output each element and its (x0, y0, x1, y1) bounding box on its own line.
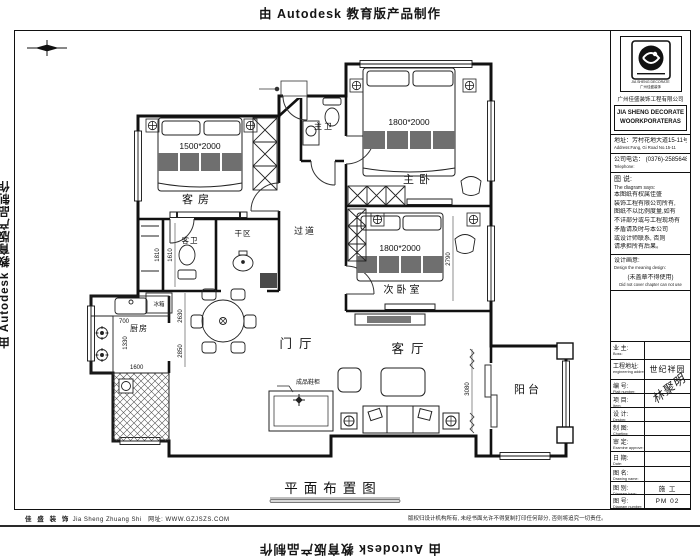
bed-size-master: 1800*2000 (388, 117, 429, 127)
phone-en: Telephone: (614, 164, 687, 169)
floor-plan: 客房 主卧 主卫 次卧室 客卫 干区 过道 厨房 门厅 客厅 阳台 冰箱 成品鞋… (15, 31, 612, 508)
row-value (645, 342, 690, 359)
label-fridge: 冰箱 (153, 300, 165, 308)
row-label-en: Diagram type: (613, 492, 642, 494)
row-label: 业 主: (613, 343, 642, 352)
seal-note-cn: (未盖章不得使用) (614, 274, 687, 282)
dim-1610: 1610 (168, 248, 174, 262)
notice-line: 装饰工程有限公司所有, (614, 200, 687, 209)
dim-2630: 2630 (178, 309, 184, 323)
row-label: 工程地址: (613, 361, 642, 370)
room-label-guest: 客房 (182, 192, 214, 206)
row-value (645, 380, 690, 393)
row-label: 审 定: (613, 437, 642, 446)
notice-line: 本图纸有权属佳盛 (614, 191, 687, 200)
company-logo-icon (631, 40, 671, 80)
row-drawing-number: 图 号:Diagram number: PM 02 (611, 495, 690, 509)
stove-burners (96, 326, 109, 362)
diagram-notice-section: 图 说: The diagram says: 本图纸有权属佳盛 装饰工程有限公司… (611, 173, 690, 255)
room-label-kitchen: 厨房 (130, 323, 148, 333)
autodesk-watermark-left: 由 Autodesk 教育版产品制作 (0, 180, 13, 349)
room-label-foyer: 门厅 (279, 336, 318, 351)
row-item: 项 目:Item: (611, 394, 690, 408)
row-label: 编 号: (613, 381, 642, 390)
notice-line: 图纸不以比例度量,如有 (614, 208, 687, 217)
room-label-dry: 干区 (235, 229, 252, 238)
row-label-en: Date: (613, 462, 642, 466)
row-label-en: Plait number: (613, 390, 642, 393)
address-section: 地址：芳村花地大道15-11号 Address:Fang, Gi Road No… (611, 134, 690, 154)
room-label-balcony: 阳台 (514, 382, 542, 396)
row-date: 日 期:Date: (611, 452, 690, 467)
dim-1600: 1600 (130, 365, 144, 371)
notice-line: 不详部分或与工程现场有 (614, 217, 687, 226)
bed-guest-room (158, 118, 242, 191)
row-label: 图 名: (613, 468, 642, 477)
notice-line: 或设计师联系, 否则 (614, 235, 687, 244)
company-name-cn: 广州佳盛装饰工程有限公司 (611, 92, 690, 105)
bed-size-guest: 1500*2000 (179, 141, 220, 151)
row-label: 日 期: (613, 453, 642, 462)
row-label-en: Boss: (613, 352, 642, 356)
room-label-second: 次卧室 (384, 283, 423, 296)
row-design: 设 计:Design: (611, 408, 690, 422)
row-label-en: engineering address: (613, 370, 642, 374)
armchairs (455, 177, 481, 254)
dining-set (191, 289, 256, 353)
row-label-en: Diagram number: (613, 505, 642, 508)
room-label-living: 客厅 (391, 341, 430, 356)
dim-1330: 1330 (123, 336, 129, 350)
row-value (645, 436, 690, 451)
notice-line: 矛盾请及时与本公司 (614, 226, 687, 235)
footer-divider (0, 525, 700, 527)
row-label: 图 别: (613, 483, 642, 492)
north-compass (27, 40, 67, 56)
title-block-rows: 业 主:Boss: 工程地址:engineering address: 世纪祥园… (611, 341, 690, 509)
seal-note-en: Did not cover chapter can not use (614, 282, 687, 287)
row-drawing-type: 图 别:Diagram type: 施 工 (611, 482, 690, 495)
dim-3080: 3080 (465, 382, 471, 396)
row-label-en: Design: (613, 418, 642, 421)
row-label-en: Item: (613, 404, 642, 407)
autodesk-watermark-bottom: 由 Autodesk 教育版产品制作 (0, 541, 700, 560)
row-label-en: Drawing name: (613, 477, 642, 481)
dim-2790: 2790 (446, 252, 452, 266)
row-value (645, 408, 690, 421)
address-cn: 地址：芳村花地大道15-11号 (614, 137, 687, 145)
plan-title: 平面布置图 (284, 481, 382, 496)
row-label: 制 图: (613, 423, 642, 432)
company-en-line2: WOORKPORATERAS (615, 118, 686, 127)
living-room-furniture (338, 314, 459, 433)
footer-brand-cn: 佳 盛 装 饰 (25, 516, 70, 523)
phone-section: 公司电话： (0376)-2585648 Telephone: (611, 154, 690, 173)
row-label: 项 目: (613, 395, 642, 404)
bed-size-second: 1800*2000 (379, 243, 420, 253)
design-section: 设计画意: Design the meaning design: (未盖章不得使… (611, 255, 690, 291)
row-label-en: Charting: (613, 432, 642, 435)
row-label-en: Examine approve: (613, 446, 642, 450)
row-project-address: 工程地址:engineering address: 世纪祥园 (611, 360, 690, 380)
drawing-frame: 客房 主卧 主卫 次卧室 客卫 干区 过道 厨房 门厅 客厅 阳台 冰箱 成品鞋… (14, 30, 691, 510)
shoe-cabinet (269, 386, 333, 431)
dim-2850: 2850 (178, 344, 184, 358)
side-tables (341, 413, 459, 429)
row-value (645, 452, 690, 466)
service-balcony (113, 373, 169, 441)
design-label-cn: 设计画意: (614, 257, 687, 265)
notice-line: 请承担所有后果。 (614, 243, 687, 252)
logo-caption-2: 广州佳盛装饰 (640, 85, 661, 90)
row-approval: 审 定:Examine approve: (611, 436, 690, 452)
room-label-master: 主卧 (403, 173, 435, 186)
company-en-line1: JIA SHENG DECORATE (615, 109, 686, 118)
row-drafting: 制 图:Charting: (611, 422, 690, 436)
row-label: 图 号: (613, 496, 642, 505)
label-shoe-cabinet: 成品鞋柜 (296, 378, 320, 386)
dim-700: 700 (119, 319, 130, 325)
design-label-en: Design the meaning design: (614, 265, 687, 270)
row-number: 编 号:Plait number: (611, 380, 690, 394)
footer-brand-en: Jia Sheng Zhuang Shi (73, 517, 142, 523)
company-logo-section: JIA SHENG DECORATE 广州佳盛装饰 (611, 31, 690, 92)
room-label-mbath: 主卫 (314, 121, 334, 131)
autodesk-watermark-top: 由 Autodesk 教育版产品制作 (0, 3, 700, 22)
drawing-type-value: 施 工 (645, 482, 690, 494)
footer-brand: 佳 盛 装 饰 Jia Sheng Zhuang Shi 网址: WWW.GZJ… (25, 513, 229, 523)
guest-bath-fixtures (141, 226, 277, 288)
row-value (645, 422, 690, 435)
diagram-says-cn: 图 说: (614, 175, 687, 185)
footer-website: 网址: WWW.GZJSZS.COM (148, 517, 229, 523)
footer-copyright: 版权归设计机构所有, 未经书面允许不得复制打印任何部分, 否则将追究一切责任。 (408, 514, 607, 522)
phone-cn: 公司电话： (0376)-2585648 (614, 156, 687, 164)
project-address-value: 世纪祥园 (645, 360, 690, 379)
company-logo-box: JIA SHENG DECORATE 广州佳盛装饰 (620, 36, 682, 92)
row-value (645, 467, 690, 481)
dim-1810: 1810 (155, 248, 161, 262)
row-drawing-name: 图 名:Drawing name: (611, 467, 690, 482)
drawing-number-value: PM 02 (645, 495, 690, 508)
company-name-en: JIA SHENG DECORATE WOORKPORATERAS (614, 105, 687, 131)
row-label: 设 计: (613, 409, 642, 418)
room-label-corridor: 过道 (294, 225, 316, 236)
address-en: Address:Fang, Gi Road No.15-11 (614, 145, 687, 150)
row-value (645, 394, 690, 407)
room-label-gbath: 客卫 (182, 235, 199, 245)
row-owner: 业 主:Boss: (611, 342, 690, 360)
title-block: JIA SHENG DECORATE 广州佳盛装饰 广州佳盛装饰工程有限公司 J… (610, 31, 690, 509)
